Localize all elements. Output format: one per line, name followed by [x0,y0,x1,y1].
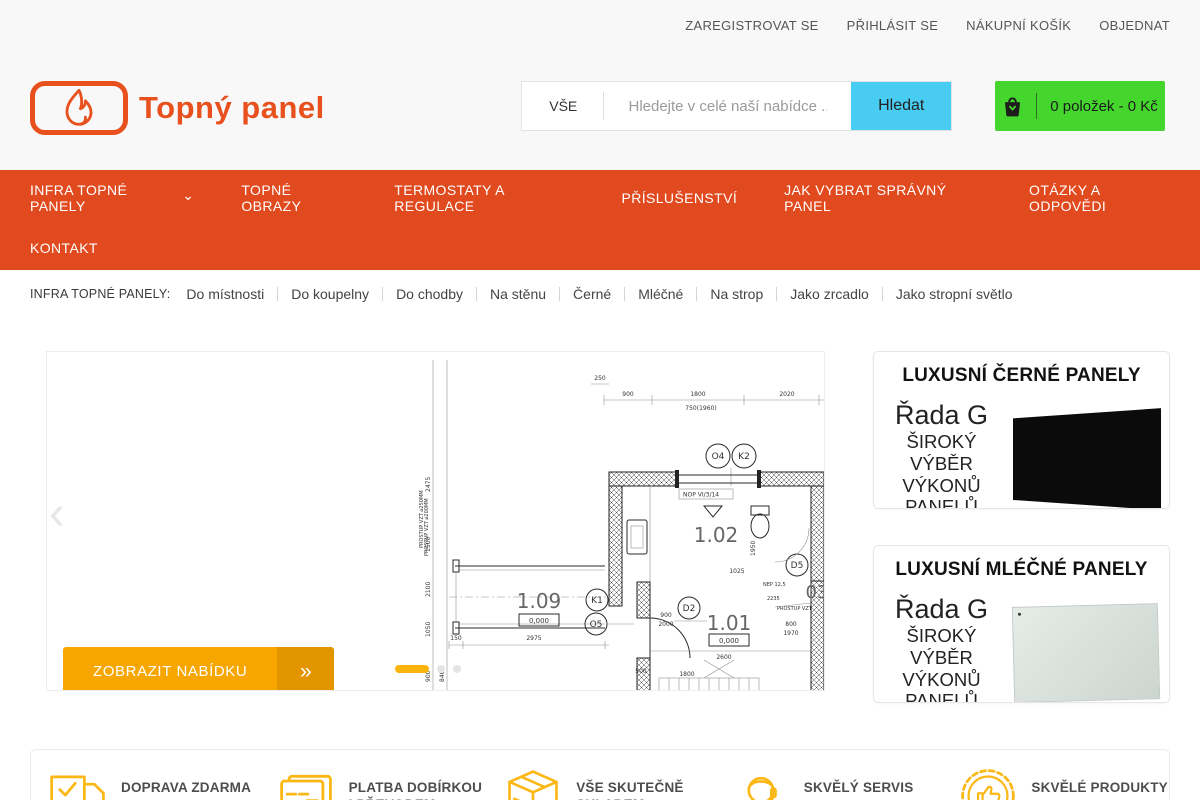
feature-free-shipping: DOPRAVA ZDARMA Doručíme zdarma [31,767,259,800]
subnav-label: INFRA TOPNÉ PANELY: [30,287,170,301]
svg-text:2000: 2000 [658,621,673,628]
cart-bag-icon [1002,95,1023,118]
subnav-link-jako-stropni-svetlo[interactable]: Jako stropní světlo [896,286,1013,302]
brand-logo[interactable]: Topný panel [30,81,325,135]
svg-text:500: 500 [635,668,647,675]
feature-products: SKVĚLÉ PRODUKTY Topné panely jsou [941,767,1169,800]
svg-text:750(1960): 750(1960) [685,405,716,412]
header-area: ZAREGISTROVAT SE PŘIHLÁSIT SE NÁKUPNÍ KO… [0,0,1200,170]
floor-plan-drawing: 2475 1500 2100 1050 900 8400 PROSTUP VZT… [419,360,824,691]
nav-item-topne-obrazy[interactable]: TOPNÉ OBRAZY [241,182,347,214]
subnav-link-cerne[interactable]: Černé [573,286,611,302]
show-offer-label: ZOBRAZIT NABÍDKU [63,647,277,691]
feature-title: SKVĚLÉ PRODUKTY [1031,780,1168,797]
main-content: ‹ 2475 1500 2100 1050 900 8400 PROSTUP V… [0,351,1200,703]
svg-text:0,000: 0,000 [719,637,739,645]
subnav-divider [382,287,383,301]
svg-text:2235: 2235 [767,596,780,602]
nav-item-jak-vybrat[interactable]: JAK VYBRAT SPRÁVNÝ PANEL [784,182,982,214]
cart-summary: 0 položek - 0 Kč [1050,98,1158,115]
cart-button[interactable]: 0 položek - 0 Kč [995,81,1165,131]
subnav-link-do-koupelny[interactable]: Do koupelny [291,286,369,302]
search-bar: VŠE Hledat [521,81,952,131]
black-panel-image [1009,406,1161,509]
svg-text:NEP 12,5: NEP 12,5 [763,582,786,588]
subnav: INFRA TOPNÉ PANELY: Do místnosti Do koup… [0,270,1200,318]
svg-text:03: 03 [806,582,824,603]
banner-text: Řada G ŠIROKÝ VÝBĚR VÝKONŮ PANELŮ [874,594,1009,703]
banner-line: ŠIROKÝ VÝBĚR [874,625,1009,669]
banner-line: Řada G [874,594,1009,625]
svg-text:K2: K2 [738,452,750,462]
feature-title: SKVĚLÝ SERVIS [804,780,930,797]
svg-text:250: 250 [594,375,606,382]
truck-icon [48,767,108,800]
svg-text:1.01: 1.01 [707,611,752,635]
subnav-link-do-mistnosti[interactable]: Do místnosti [186,286,264,302]
search-input[interactable] [604,82,851,130]
svg-text:D2: D2 [683,604,696,614]
banner-black-panels[interactable]: LUXUSNÍ ČERNÉ PANELY Řada G ŠIROKÝ VÝBĚR… [873,351,1170,509]
svg-text:1950: 1950 [750,541,757,556]
svg-text:900: 900 [660,612,672,619]
banner-line: ŠIROKÝ VÝBĚR [874,431,1009,475]
subnav-divider [882,287,883,301]
search-button[interactable]: Hledat [851,82,951,130]
subnav-link-mlecne[interactable]: Mléčné [638,286,683,302]
feature-service: SKVĚLÝ SERVIS Rádi zodpovíme Vaše [714,767,942,800]
svg-text:NOP VI/3/14: NOP VI/3/14 [683,492,719,499]
nav-item-termostaty[interactable]: TERMOSTATY A REGULACE [394,182,574,214]
logo-frame [30,81,128,135]
side-banners: LUXUSNÍ ČERNÉ PANELY Řada G ŠIROKÝ VÝBĚR… [873,351,1170,703]
main-nav-row2: KONTAKT [30,225,1170,270]
carousel-dot[interactable] [453,665,461,673]
svg-text:D5: D5 [791,561,804,571]
banner-line: VÝKONŮ PANELŮ [874,475,1009,509]
svg-text:O4: O4 [712,452,725,462]
flame-icon [62,87,96,129]
subnav-link-do-chodby[interactable]: Do chodby [396,286,463,302]
svg-text:1800: 1800 [690,391,705,398]
features-strip: DOPRAVA ZDARMA Doručíme zdarma PLATBA DO… [30,749,1170,800]
show-offer-button[interactable]: ZOBRAZIT NABÍDKU » [63,647,334,691]
svg-text:150: 150 [450,635,462,642]
svg-text:1050: 1050 [425,622,432,637]
banner-text: Řada G ŠIROKÝ VÝBĚR VÝKONŮ PANELŮ [874,400,1009,509]
topbar-link-order[interactable]: OBJEDNAT [1099,18,1170,33]
search-category-select[interactable]: VŠE [522,82,604,130]
carousel-dot-active[interactable] [395,665,429,673]
hero-carousel: ‹ 2475 1500 2100 1050 900 8400 PROSTUP V… [46,351,825,691]
nav-item-label: INFRA TOPNÉ PANELY [30,182,174,214]
feature-in-stock: VŠE SKUTEČNĚ SKLADEM [486,767,714,800]
svg-text:1025: 1025 [729,568,744,575]
banner-milky-panels[interactable]: LUXUSNÍ MLÉČNÉ PANELY Řada G ŠIROKÝ VÝBĚ… [873,545,1170,703]
svg-text:1.02: 1.02 [694,523,739,547]
thumbs-up-icon [958,767,1018,800]
svg-text:2020: 2020 [779,391,794,398]
subnav-link-jako-zrcadlo[interactable]: Jako zrcadlo [790,286,869,302]
main-nav-row1: INFRA TOPNÉ PANELY ⌄ TOPNÉ OBRAZY TERMOS… [30,170,1170,225]
svg-text:900: 900 [622,391,634,398]
feature-title: VŠE SKUTEČNĚ SKLADEM [576,780,714,800]
svg-text:2100: 2100 [425,582,432,597]
banner-line: VÝKONŮ PANELŮ [874,669,1009,703]
svg-text:2975: 2975 [526,635,541,642]
svg-text:1800: 1800 [679,671,694,678]
svg-text:1970: 1970 [783,630,798,637]
subnav-divider [476,287,477,301]
package-icon [503,767,563,800]
nav-item-prislusenstvi[interactable]: PŘÍSLUŠENSTVÍ [621,190,737,206]
nav-item-otazky[interactable]: OTÁZKY A ODPOVĚDI [1029,182,1170,214]
svg-text:O5: O5 [590,620,603,630]
banner-line: Řada G [874,400,1009,431]
carousel-prev-icon[interactable]: ‹ [49,490,65,538]
svg-text:2475: 2475 [425,477,432,492]
svg-text:PROSTUP VZT: PROSTUP VZT [777,606,813,612]
subnav-divider [776,287,777,301]
topbar-link-register[interactable]: ZAREGISTROVAT SE [685,18,818,33]
feature-title: DOPRAVA ZDARMA [121,780,251,797]
subnav-divider [277,287,278,301]
feature-payment: PLATBA DOBÍRKOU I PŘEVODEM [259,767,487,800]
carousel-indicators [395,665,461,673]
banner-title: LUXUSNÍ MLÉČNÉ PANELY [874,559,1169,581]
milky-panel-image [1009,600,1161,703]
banner-title: LUXUSNÍ ČERNÉ PANELY [874,365,1169,387]
double-arrow-icon: » [277,647,334,691]
main-nav: INFRA TOPNÉ PANELY ⌄ TOPNÉ OBRAZY TERMOS… [0,170,1200,270]
svg-text:0,000: 0,000 [529,617,549,625]
subnav-link-na-strop[interactable]: Na strop [710,286,763,302]
subnav-link-na-stenu[interactable]: Na stěnu [490,286,546,302]
support-icon [731,767,791,800]
credit-card-icon [276,767,336,800]
brand-name: Topný panel [139,90,325,126]
nav-item-kontakt[interactable]: KONTAKT [30,240,98,256]
topbar: ZAREGISTROVAT SE PŘIHLÁSIT SE NÁKUPNÍ KO… [0,0,1200,50]
subnav-divider [624,287,625,301]
svg-text:800: 800 [785,621,797,628]
svg-text:K1: K1 [591,596,603,606]
subnav-divider [696,287,697,301]
svg-text:2600: 2600 [716,654,731,661]
nav-item-infra-panely[interactable]: INFRA TOPNÉ PANELY ⌄ [30,182,194,214]
carousel-dot[interactable] [437,665,445,673]
cart-divider [1036,93,1037,119]
topbar-link-cart[interactable]: NÁKUPNÍ KOŠÍK [966,18,1071,33]
header: Topný panel VŠE Hledat 0 položek - 0 Kč [0,50,1200,170]
topbar-link-login[interactable]: PŘIHLÁSIT SE [847,18,939,33]
subnav-divider [559,287,560,301]
svg-text:PROSTUP VZT ⌀200MM: PROSTUP VZT ⌀200MM [424,498,430,556]
chevron-down-icon: ⌄ [182,191,194,199]
feature-title: PLATBA DOBÍRKOU I PŘEVODEM [349,780,487,800]
svg-text:1.09: 1.09 [517,589,562,613]
